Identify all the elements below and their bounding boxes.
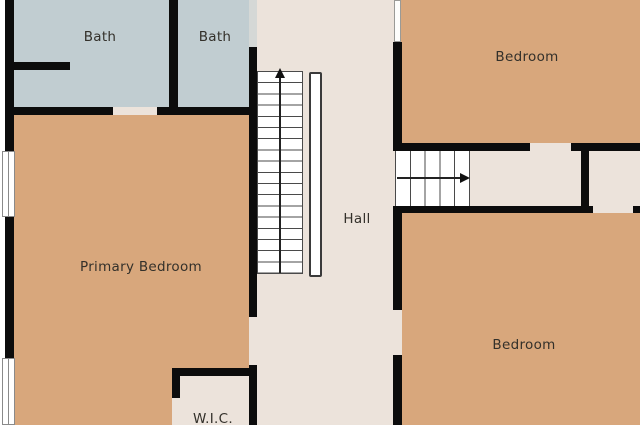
wall [157, 107, 257, 115]
wall [393, 206, 593, 213]
room-bedroom-top-floor [400, 0, 640, 151]
room-label-bath-right: Bath [199, 29, 232, 45]
window [2, 358, 15, 425]
wall [5, 0, 14, 151]
wall [5, 217, 14, 358]
room-label-wic: W.I.C. [193, 411, 233, 425]
stairwell-opening [394, 0, 401, 42]
door-opening [113, 107, 157, 115]
window [2, 151, 15, 217]
room-bedroom-bottom-floor [400, 206, 640, 425]
room-bath-left-floor [5, 0, 169, 115]
room-label-primary-bedroom: Primary Bedroom [80, 259, 202, 275]
wall [633, 206, 640, 213]
stairs-right-arrow-icon [460, 173, 470, 183]
wall [393, 143, 530, 151]
stairs-up-arrow-icon [275, 68, 285, 78]
wall [5, 62, 70, 70]
wall [393, 206, 402, 310]
room-label-hall: Hall [343, 211, 370, 227]
room-label-bedroom-bottom: Bedroom [492, 337, 555, 353]
door-panel [249, 0, 257, 47]
room-label-bedroom-top: Bedroom [495, 49, 558, 65]
wall [581, 151, 589, 206]
room-label-bath-left: Bath [84, 29, 117, 45]
wall [571, 143, 640, 151]
wall [169, 0, 178, 115]
wall [5, 107, 113, 115]
stairs-direction-line [279, 78, 281, 273]
wall [393, 42, 402, 151]
staircase-railing [309, 72, 322, 277]
door-opening [393, 310, 402, 355]
wall [393, 355, 402, 425]
wall [172, 368, 256, 376]
stairs-direction-line [397, 177, 461, 179]
floor-plan: Bath Bath Bedroom Primary Bedroom Hall B… [0, 0, 640, 425]
wall [249, 47, 257, 317]
room-bath-right-floor [169, 0, 257, 115]
